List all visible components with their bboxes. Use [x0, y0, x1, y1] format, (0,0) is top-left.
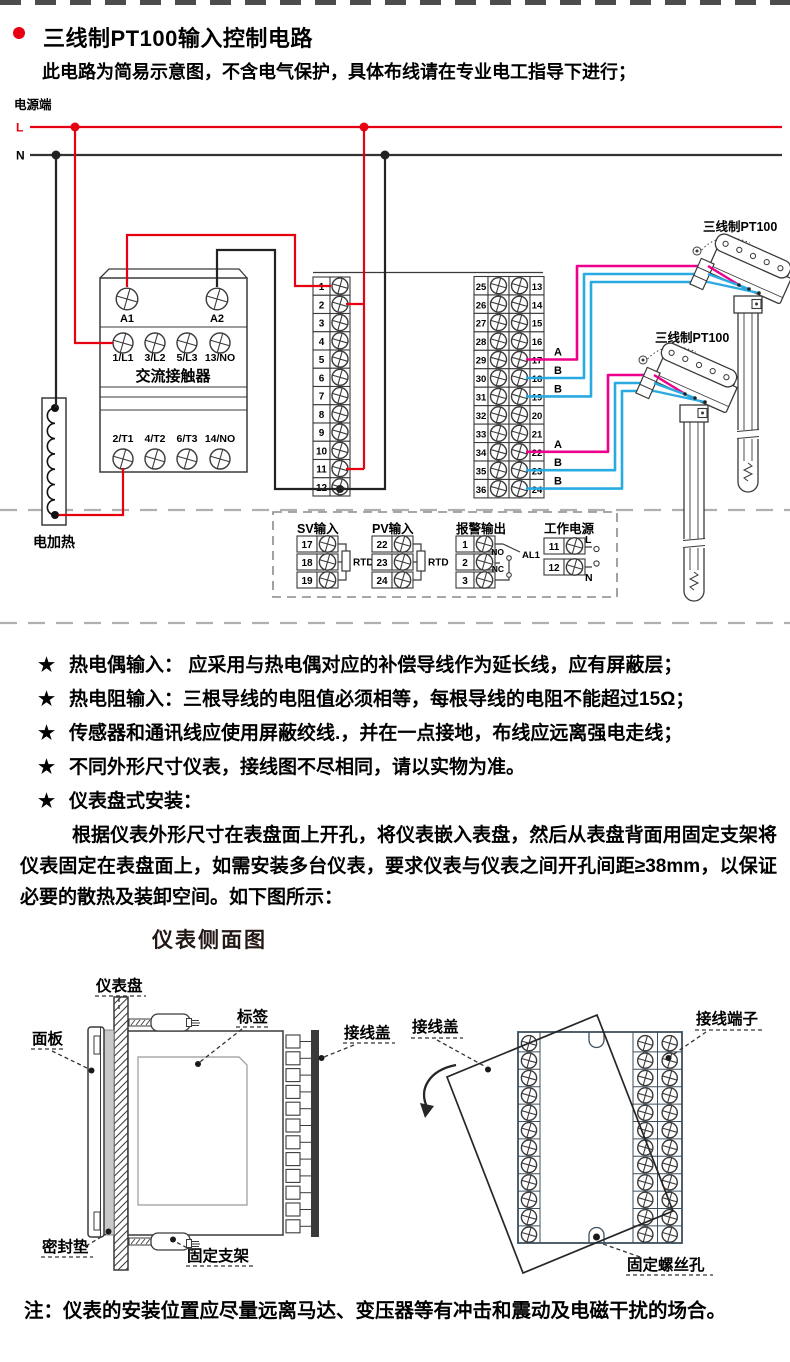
side-view-diagram: 仪表盘 面板 标签 接线盖 密封垫 固定支架	[31, 976, 395, 1270]
io-sv-rows: 171819	[297, 536, 338, 588]
terminal-number: 30	[476, 374, 487, 385]
star-icon: ★	[38, 654, 55, 677]
live-rail-label: L	[16, 121, 23, 135]
wire-cover-bar	[311, 1030, 319, 1237]
terminal-screw	[177, 333, 197, 353]
terminal-screw	[210, 333, 230, 353]
terminal-screw	[332, 369, 348, 385]
note-text: 不同外形尺寸仪表，接线图不尽相同，请以实物为准。	[69, 757, 525, 778]
rear-view-diagram: 接线盖 接线端子 固定螺丝孔	[411, 1009, 765, 1275]
terminal-screw	[512, 352, 528, 368]
terminal-number: 10	[316, 446, 328, 457]
terminal-screw	[638, 1105, 653, 1120]
terminal-screw	[521, 1175, 536, 1190]
heater-label: 电加热	[33, 534, 75, 550]
terminal-screw	[638, 1036, 653, 1051]
terminal-screw	[491, 352, 507, 368]
terminal-screw	[332, 333, 348, 349]
io-sv-title: SV输入	[297, 521, 339, 536]
star-icon: ★	[38, 756, 55, 779]
terminal-number: 8	[319, 410, 325, 421]
panel-board-label: 仪表盘	[95, 976, 143, 995]
terminal-screw	[662, 1070, 677, 1085]
terminal-screw	[521, 1157, 536, 1172]
power-label: 电源端	[14, 97, 52, 112]
terminal-number: 4	[319, 337, 325, 348]
terminal-screw	[662, 1036, 677, 1051]
terminal-screw	[512, 333, 528, 349]
terminal-number: 18	[532, 374, 543, 385]
wire-cover-rear-label: 接线盖	[412, 1017, 459, 1036]
terminal-strip-right: 2513261427152816291730183119322033213422…	[474, 277, 544, 498]
pt100-upper-label: 三线制PT100	[703, 219, 777, 234]
terminal-comb	[286, 1035, 311, 1233]
io-terminal-panel: SV输入 PV输入 报警输出 工作电源 171819 RTD 222324 RT…	[297, 521, 599, 588]
alarm-no-label: NO	[491, 547, 504, 557]
terminal-number: 22	[376, 540, 388, 551]
terminal-number: 25	[476, 282, 487, 293]
terminal-number: 22	[532, 448, 543, 459]
gasket-label: 密封垫	[42, 1237, 89, 1256]
terminal-number: 24	[532, 485, 543, 496]
wiring-diagram: 电源端 L N A1 A2 1/L1 3/L2 5/L3 13/NO 交流接触器	[0, 0, 790, 1362]
ac-contactor: A1 A2 1/L1 3/L2 5/L3 13/NO 交流接触器 2/T1 4/…	[100, 269, 247, 472]
footer-note: 注：仪表的安装位置应尽量远离马达、变压器等有冲击和震动及电磁干扰的场合。	[24, 1294, 726, 1323]
terminal-screw	[491, 296, 507, 312]
power-rails: 电源端 L N	[14, 97, 782, 163]
terminal-screw	[512, 462, 528, 478]
terminal-strip-left: 123456789101112	[313, 277, 350, 496]
terminal-screw	[638, 1157, 653, 1172]
terminal-number: 2	[319, 300, 325, 311]
star-icon: ★	[38, 790, 55, 813]
supply-neutral-label: N	[585, 572, 593, 584]
terminal-screw	[332, 278, 348, 294]
front-panel-label: 面板	[32, 1029, 64, 1048]
terminal-screw	[491, 315, 507, 331]
terminal-screw	[638, 1053, 653, 1068]
terminal-number: 17	[532, 356, 543, 367]
terminal-screw	[332, 351, 348, 367]
io-supply-rows: 1112	[544, 538, 585, 575]
terminal-screw	[394, 536, 410, 552]
terminal-screw	[491, 425, 507, 441]
install-paragraph: 根据仪表外形尺寸在表盘面上开孔，将仪表嵌入表盘，然后从表盘背面用固定支架将仪表固…	[20, 820, 777, 913]
terminal-number: 24	[376, 576, 388, 587]
bracket-label: 固定支架	[187, 1246, 250, 1265]
wire-tag: B	[554, 384, 562, 396]
terminal-number: 35	[476, 466, 487, 477]
terminal-screw	[662, 1088, 677, 1103]
contactor-pole-label: 1/L1	[112, 352, 133, 364]
terminal-screw	[512, 481, 528, 497]
wire-tag: A	[554, 439, 562, 451]
terminal-screw	[662, 1105, 677, 1120]
contactor-pole-label: 6/T3	[176, 433, 197, 445]
terminal-screw	[521, 1192, 536, 1207]
terminal-screw	[319, 554, 335, 570]
terminal-screw	[512, 370, 528, 386]
electric-heater: 电加热	[33, 398, 75, 550]
note-item: ★热电偶输入： 应采用与热电偶对应的补偿导线作为延长线，应有屏蔽层；	[38, 650, 682, 677]
gasket	[104, 1030, 114, 1235]
note-item: ★仪表盘式安装：	[38, 786, 202, 813]
terminal-screw	[332, 406, 348, 422]
terminal-number: 14	[532, 300, 543, 311]
terminal-number: 7	[319, 392, 325, 403]
terminal-screw	[332, 461, 348, 477]
rotate-arrowhead	[420, 1103, 434, 1118]
terminal-number: 31	[476, 393, 487, 404]
terminal-number: 15	[532, 319, 543, 330]
terminal-screw	[662, 1123, 677, 1138]
terminal-number: 34	[476, 448, 487, 459]
terminal-screw	[332, 424, 348, 440]
rtd-label: RTD	[428, 558, 449, 569]
note-item: ★热电阻输入：三根导线的电阻值必须相等，每根导线的电阻不能超过15Ω；	[38, 684, 694, 711]
fixing-bracket-top	[129, 1014, 200, 1031]
terminal-screw	[177, 449, 197, 469]
terminal-screw	[491, 370, 507, 386]
terminal-screw	[512, 444, 528, 460]
terminal-screw	[113, 333, 133, 353]
terminal-screw	[638, 1227, 653, 1242]
terminal-screw	[512, 407, 528, 423]
rtd-resistor-symbol	[417, 551, 425, 571]
terminal-screw	[332, 315, 348, 331]
terminal-number: 11	[549, 542, 560, 553]
wire-tag: A	[554, 347, 562, 359]
terminal-screw	[521, 1053, 536, 1068]
terminal-number: 19	[532, 393, 543, 404]
io-alarm-title: 报警输出	[456, 521, 506, 536]
pt100-sensor-lower	[636, 341, 746, 601]
terminal-screw	[521, 1210, 536, 1225]
io-alarm-rows: 123	[456, 536, 495, 588]
terminal-number: 32	[476, 411, 487, 422]
contactor-pole-label: 4/T2	[144, 433, 165, 445]
terminal-number: 3	[462, 576, 468, 587]
terminal-screw	[491, 388, 507, 404]
terminal-screw	[521, 1123, 536, 1138]
wire-cover-side-label: 接线盖	[344, 1023, 391, 1042]
note-item: ★不同外形尺寸仪表，接线图不尽相同，请以实物为准。	[38, 752, 525, 779]
terminal-screw	[491, 333, 507, 349]
pt100-lower-label: 三线制PT100	[655, 330, 729, 345]
terminal-number: 1	[462, 540, 468, 551]
terminal-screw	[491, 444, 507, 460]
terminal-screw	[521, 1227, 536, 1242]
terminal-number: 21	[532, 429, 543, 440]
star-icon: ★	[38, 688, 55, 711]
terminal-screw	[491, 462, 507, 478]
wire-tag: B	[554, 365, 562, 377]
terminal-screw	[638, 1088, 653, 1103]
terminal-number: 20	[532, 411, 543, 422]
terminal-number: 23	[376, 558, 388, 569]
contactor-pole-label: 2/T1	[112, 433, 133, 445]
terminal-number: 6	[319, 373, 325, 384]
terminal-screw	[512, 315, 528, 331]
terminal-number: 12	[548, 563, 560, 574]
contactor-pole-label: 5/L3	[176, 352, 197, 364]
terminal-number: 36	[476, 485, 487, 496]
rtd-resistor-symbol	[342, 551, 350, 571]
supply-live-label: L	[585, 534, 592, 546]
note-text: 传感器和通讯线应使用屏蔽绞线.，并在一点接地，布线应远离强电走线；	[69, 723, 682, 744]
terminal-number: 9	[319, 428, 325, 439]
terminal-screw	[491, 278, 507, 294]
alarm-nc-label: NC	[492, 564, 504, 574]
rtd-label: RTD	[353, 558, 374, 569]
terminal-screw	[512, 296, 528, 312]
terminal-screw	[116, 288, 138, 310]
terminal-screw	[521, 1088, 536, 1103]
contactor-coil-a1-label: A1	[120, 313, 134, 325]
terminal-number: 29	[476, 356, 487, 367]
terminal-screw	[210, 449, 230, 469]
screw-hole-label: 固定螺丝孔	[627, 1255, 705, 1274]
terminal-number: 27	[476, 319, 487, 330]
terminal-number: 18	[301, 558, 313, 569]
terminal-screw	[206, 288, 228, 310]
terminal-screw	[521, 1070, 536, 1085]
io-pv-title: PV输入	[372, 521, 414, 536]
terminal-screw	[145, 449, 165, 469]
terminal-screw	[145, 333, 165, 353]
terminal-number: 17	[301, 540, 313, 551]
terminal-number: 33	[476, 429, 487, 440]
contactor-pole-label: 3/L2	[144, 352, 165, 364]
terminal-screw	[566, 559, 582, 575]
neutral-rail-label: N	[16, 149, 25, 163]
terminal-screw	[512, 388, 528, 404]
terminal-number: 11	[316, 465, 327, 476]
terminal-screw	[319, 536, 335, 552]
note-text: 热电阻输入：三根导线的电阻值必须相等，每根导线的电阻不能超过15Ω；	[69, 689, 694, 710]
terminal-screw	[521, 1140, 536, 1155]
terminal-screw	[394, 554, 410, 570]
io-pv-rows: 222324	[372, 536, 413, 588]
terminal-screw	[394, 572, 410, 588]
terminal-screw	[476, 572, 492, 588]
star-icon: ★	[38, 722, 55, 745]
terminal-number: 13	[532, 282, 543, 293]
terminal-screw	[113, 449, 133, 469]
terminal-screw	[332, 296, 348, 312]
terminal-number: 23	[532, 466, 543, 477]
contactor-title: 交流接触器	[135, 367, 211, 385]
terminal-screw	[521, 1105, 536, 1120]
terminal-screw	[638, 1175, 653, 1190]
terminal-screw	[662, 1227, 677, 1242]
terminal-screw	[662, 1140, 677, 1155]
contactor-pole-label: 14/NO	[205, 433, 235, 445]
alarm-relay-label: AL1	[522, 550, 541, 561]
terminals-label: 接线端子	[696, 1009, 759, 1028]
junction-dot	[336, 485, 344, 493]
terminal-screw	[476, 536, 492, 552]
terminal-screw	[332, 388, 348, 404]
side-view-title: 仪表侧面图	[152, 924, 267, 954]
terminal-screw	[638, 1070, 653, 1085]
wire-tag: B	[554, 457, 562, 469]
screw-hole-dot	[593, 1234, 600, 1241]
terminal-screw	[662, 1157, 677, 1172]
terminal-screw	[491, 407, 507, 423]
terminal-screw	[491, 481, 507, 497]
sticker-label: 标签	[236, 1007, 269, 1026]
contactor-coil-a2-label: A2	[210, 313, 224, 325]
contactor-pole-label: 13/NO	[205, 352, 235, 364]
terminal-screw	[512, 278, 528, 294]
terminal-screw	[638, 1192, 653, 1207]
terminal-screw	[476, 554, 492, 570]
page: 三线制PT100输入控制电路 此电路为简易示意图，不含电气保护，具体布线请在专业…	[0, 0, 790, 1362]
terminal-number: 16	[532, 337, 543, 348]
terminal-screw	[332, 442, 348, 458]
terminal-screw	[512, 425, 528, 441]
note-text: 热电偶输入： 应采用与热电偶对应的补偿导线作为延长线，应有屏蔽层；	[69, 655, 682, 676]
terminal-number: 3	[319, 319, 325, 330]
panel-hatch-lines	[114, 997, 128, 1270]
terminal-number: 2	[462, 558, 468, 569]
terminal-screw	[319, 572, 335, 588]
note-text: 仪表盘式安装：	[69, 791, 202, 812]
terminal-number: 28	[476, 337, 487, 348]
note-item: ★传感器和通讯线应使用屏蔽绞线.，并在一点接地，布线应远离强电走线；	[38, 718, 682, 745]
front-panel-bezel	[88, 1027, 104, 1237]
wire-tag: B	[554, 476, 562, 488]
terminal-number: 19	[301, 576, 313, 587]
terminal-number: 1	[319, 282, 325, 293]
terminal-screw	[662, 1192, 677, 1207]
terminal-number: 26	[476, 300, 487, 311]
terminal-number: 5	[319, 355, 325, 366]
terminal-screw	[566, 538, 582, 554]
